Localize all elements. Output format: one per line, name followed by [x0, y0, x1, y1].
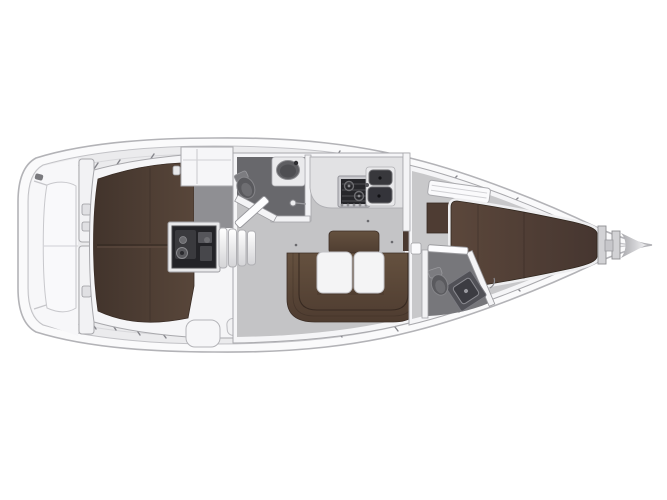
burner-cap [358, 195, 361, 198]
passage-latch [411, 243, 421, 254]
forward-head-wall-left [422, 250, 428, 318]
shower-mixer [290, 200, 296, 206]
sink-faucet [365, 183, 369, 187]
galley [310, 157, 403, 208]
step-tread [219, 228, 227, 268]
wardrobe-handle [173, 166, 180, 175]
aft-head-wall-bottom [271, 216, 310, 222]
yacht-floorplan-canvas [0, 0, 667, 500]
cockpit-locker [186, 320, 220, 347]
bulkhead-latch [82, 286, 91, 297]
table-leaf [354, 252, 384, 293]
step-tread [229, 229, 237, 267]
yacht-floorplan [0, 0, 667, 500]
stern-platform [29, 158, 94, 336]
sink-drain [378, 176, 381, 179]
port-cabin-wardrobe [181, 147, 233, 186]
stove-top [341, 179, 367, 204]
engine-pulley-small [180, 237, 187, 244]
table-leaf [317, 252, 352, 293]
washbasin-bowl [280, 165, 296, 178]
aft-head [231, 155, 311, 228]
engine-compartment [168, 222, 220, 272]
step-tread [238, 230, 246, 266]
basin-faucet [294, 161, 298, 165]
engine-pulley-hub [180, 251, 184, 255]
settee-backrest [329, 231, 379, 254]
engine-cap [204, 237, 210, 243]
salon-bulkhead [403, 153, 410, 231]
stern-panel [43, 182, 76, 312]
locker-crossbar [605, 240, 613, 251]
bulkhead-latch [82, 204, 91, 215]
burner-cap [348, 185, 351, 188]
engine-part [200, 246, 212, 261]
sink-drain [377, 194, 380, 197]
step-tread [248, 231, 256, 265]
